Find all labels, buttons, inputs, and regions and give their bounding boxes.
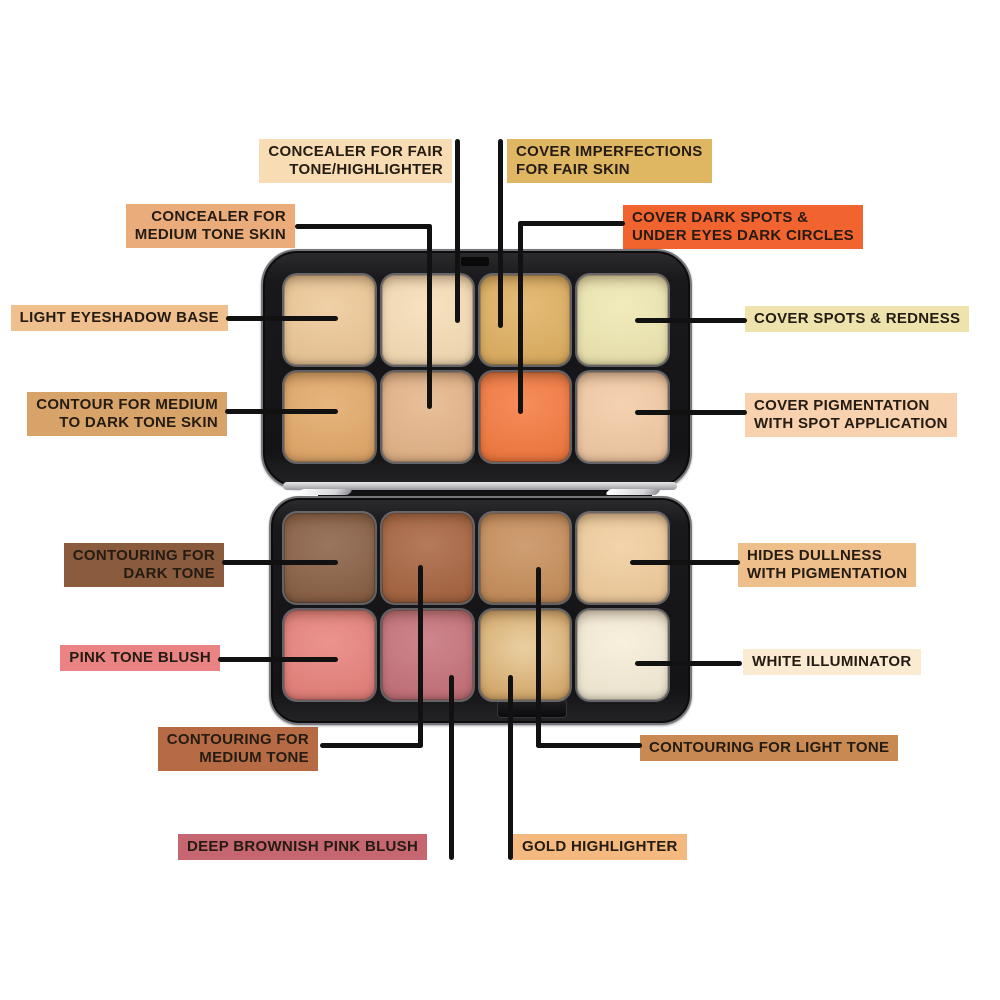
label-cover-imperfections: COVER IMPERFECTIONS FOR FAIR SKIN [507, 139, 712, 183]
label-line: FOR FAIR SKIN [516, 161, 703, 179]
label-concealer-fair-tone: CONCEALER FOR FAIR TONE/HIGHLIGHTER [259, 139, 452, 183]
label-gold-highlighter: GOLD HIGHLIGHTER [513, 834, 687, 860]
connector-cover-dark-spots-v [518, 221, 523, 414]
label-line: MEDIUM TONE [167, 749, 309, 767]
connector-cover-imperfections [498, 139, 503, 328]
connector-white-illuminator [635, 661, 742, 666]
cover-dark-spots-pan [480, 372, 571, 462]
label-line: WITH SPOT APPLICATION [754, 415, 948, 433]
connector-contour-medium-dark [225, 409, 338, 414]
connector-contouring-dark [222, 560, 338, 565]
label-line: WITH PIGMENTATION [747, 565, 907, 583]
label-line: UNDER EYES DARK CIRCLES [632, 227, 854, 245]
label-contouring-medium-tone: CONTOURING FOR MEDIUM TONE [158, 727, 318, 771]
connector-gold-highlighter [508, 675, 513, 860]
label-line: TO DARK TONE SKIN [36, 414, 218, 432]
label-line: HIDES DULLNESS [747, 547, 907, 565]
label-line: COVER DARK SPOTS & [632, 209, 854, 227]
label-contouring-dark-tone: CONTOURING FOR DARK TONE [64, 543, 224, 587]
cover-imperfections-fair-pan [480, 275, 571, 365]
label-pink-tone-blush: PINK TONE BLUSH [60, 645, 220, 671]
label-line: LIGHT EYESHADOW BASE [20, 309, 219, 327]
deep-brownish-pink-blush-pan [382, 610, 473, 700]
top-pans-grid [284, 275, 668, 462]
connector-deep-pink-blush [449, 675, 454, 860]
contour-medium-dark-pan [284, 372, 375, 462]
contouring-medium-tone-pan [382, 513, 473, 603]
label-line: CONCEALER FOR FAIR [268, 143, 443, 161]
hinge-clip-right [605, 489, 661, 495]
label-line: PINK TONE BLUSH [69, 649, 211, 667]
label-line: MEDIUM TONE SKIN [135, 226, 286, 244]
connector-cover-dark-spots-h [518, 221, 625, 226]
connector-contouring-light-v [536, 567, 541, 748]
contouring-dark-tone-pan [284, 513, 375, 603]
contouring-light-tone-pan [480, 513, 571, 603]
label-line: CONCEALER FOR [135, 208, 286, 226]
connector-contouring-medium-v [418, 565, 423, 748]
label-line: COVER PIGMENTATION [754, 397, 948, 415]
label-line: DARK TONE [73, 565, 215, 583]
connector-contouring-medium-h [320, 743, 423, 748]
connector-concealer-medium-v [427, 224, 432, 409]
label-white-illuminator: WHITE ILLUMINATOR [743, 649, 921, 675]
label-line: COVER SPOTS & REDNESS [754, 310, 960, 328]
label-cover-spots-redness: COVER SPOTS & REDNESS [745, 306, 969, 332]
bottom-pans-grid [284, 513, 668, 700]
label-line: DEEP BROWNISH PINK BLUSH [187, 838, 418, 856]
label-cover-dark-spots: COVER DARK SPOTS & UNDER EYES DARK CIRCL… [623, 205, 863, 249]
hides-dullness-pan [577, 513, 668, 603]
label-concealer-medium-tone: CONCEALER FOR MEDIUM TONE SKIN [126, 204, 295, 248]
label-line: GOLD HIGHLIGHTER [522, 838, 678, 856]
connector-cover-spots [635, 318, 747, 323]
connector-light-eyeshadow [226, 316, 338, 321]
label-cover-pigmentation: COVER PIGMENTATION WITH SPOT APPLICATION [745, 393, 957, 437]
connector-concealer-fair [455, 139, 460, 323]
label-line: COVER IMPERFECTIONS [516, 143, 703, 161]
connector-contouring-light-h [536, 743, 642, 748]
connector-hides-dullness [630, 560, 740, 565]
label-line: WHITE ILLUMINATOR [752, 653, 912, 671]
pink-tone-blush-pan [284, 610, 375, 700]
gold-highlighter-pan [480, 610, 571, 700]
connector-pink-tone [218, 657, 338, 662]
label-line: TONE/HIGHLIGHTER [268, 161, 443, 179]
label-deep-brownish-pink-blush: DEEP BROWNISH PINK BLUSH [178, 834, 427, 860]
connector-cover-pigmentation [635, 410, 747, 415]
label-line: CONTOUR FOR MEDIUM [36, 396, 218, 414]
case-latch-notch [461, 257, 489, 266]
hinge-clip-left [297, 489, 353, 495]
label-contouring-light-tone: CONTOURING FOR LIGHT TONE [640, 735, 898, 761]
label-line: CONTOURING FOR [167, 731, 309, 749]
label-contour-medium-dark: CONTOUR FOR MEDIUM TO DARK TONE SKIN [27, 392, 227, 436]
palette-infographic: CONCEALER FOR FAIR TONE/HIGHLIGHTER COVE… [0, 0, 1000, 1000]
label-line: CONTOURING FOR LIGHT TONE [649, 739, 889, 757]
connector-concealer-medium-h [295, 224, 432, 229]
label-hides-dullness: HIDES DULLNESS WITH PIGMENTATION [738, 543, 916, 587]
label-line: CONTOURING FOR [73, 547, 215, 565]
label-light-eyeshadow-base: LIGHT EYESHADOW BASE [11, 305, 228, 331]
cover-pigmentation-pan [577, 372, 668, 462]
white-illuminator-pan [577, 610, 668, 700]
